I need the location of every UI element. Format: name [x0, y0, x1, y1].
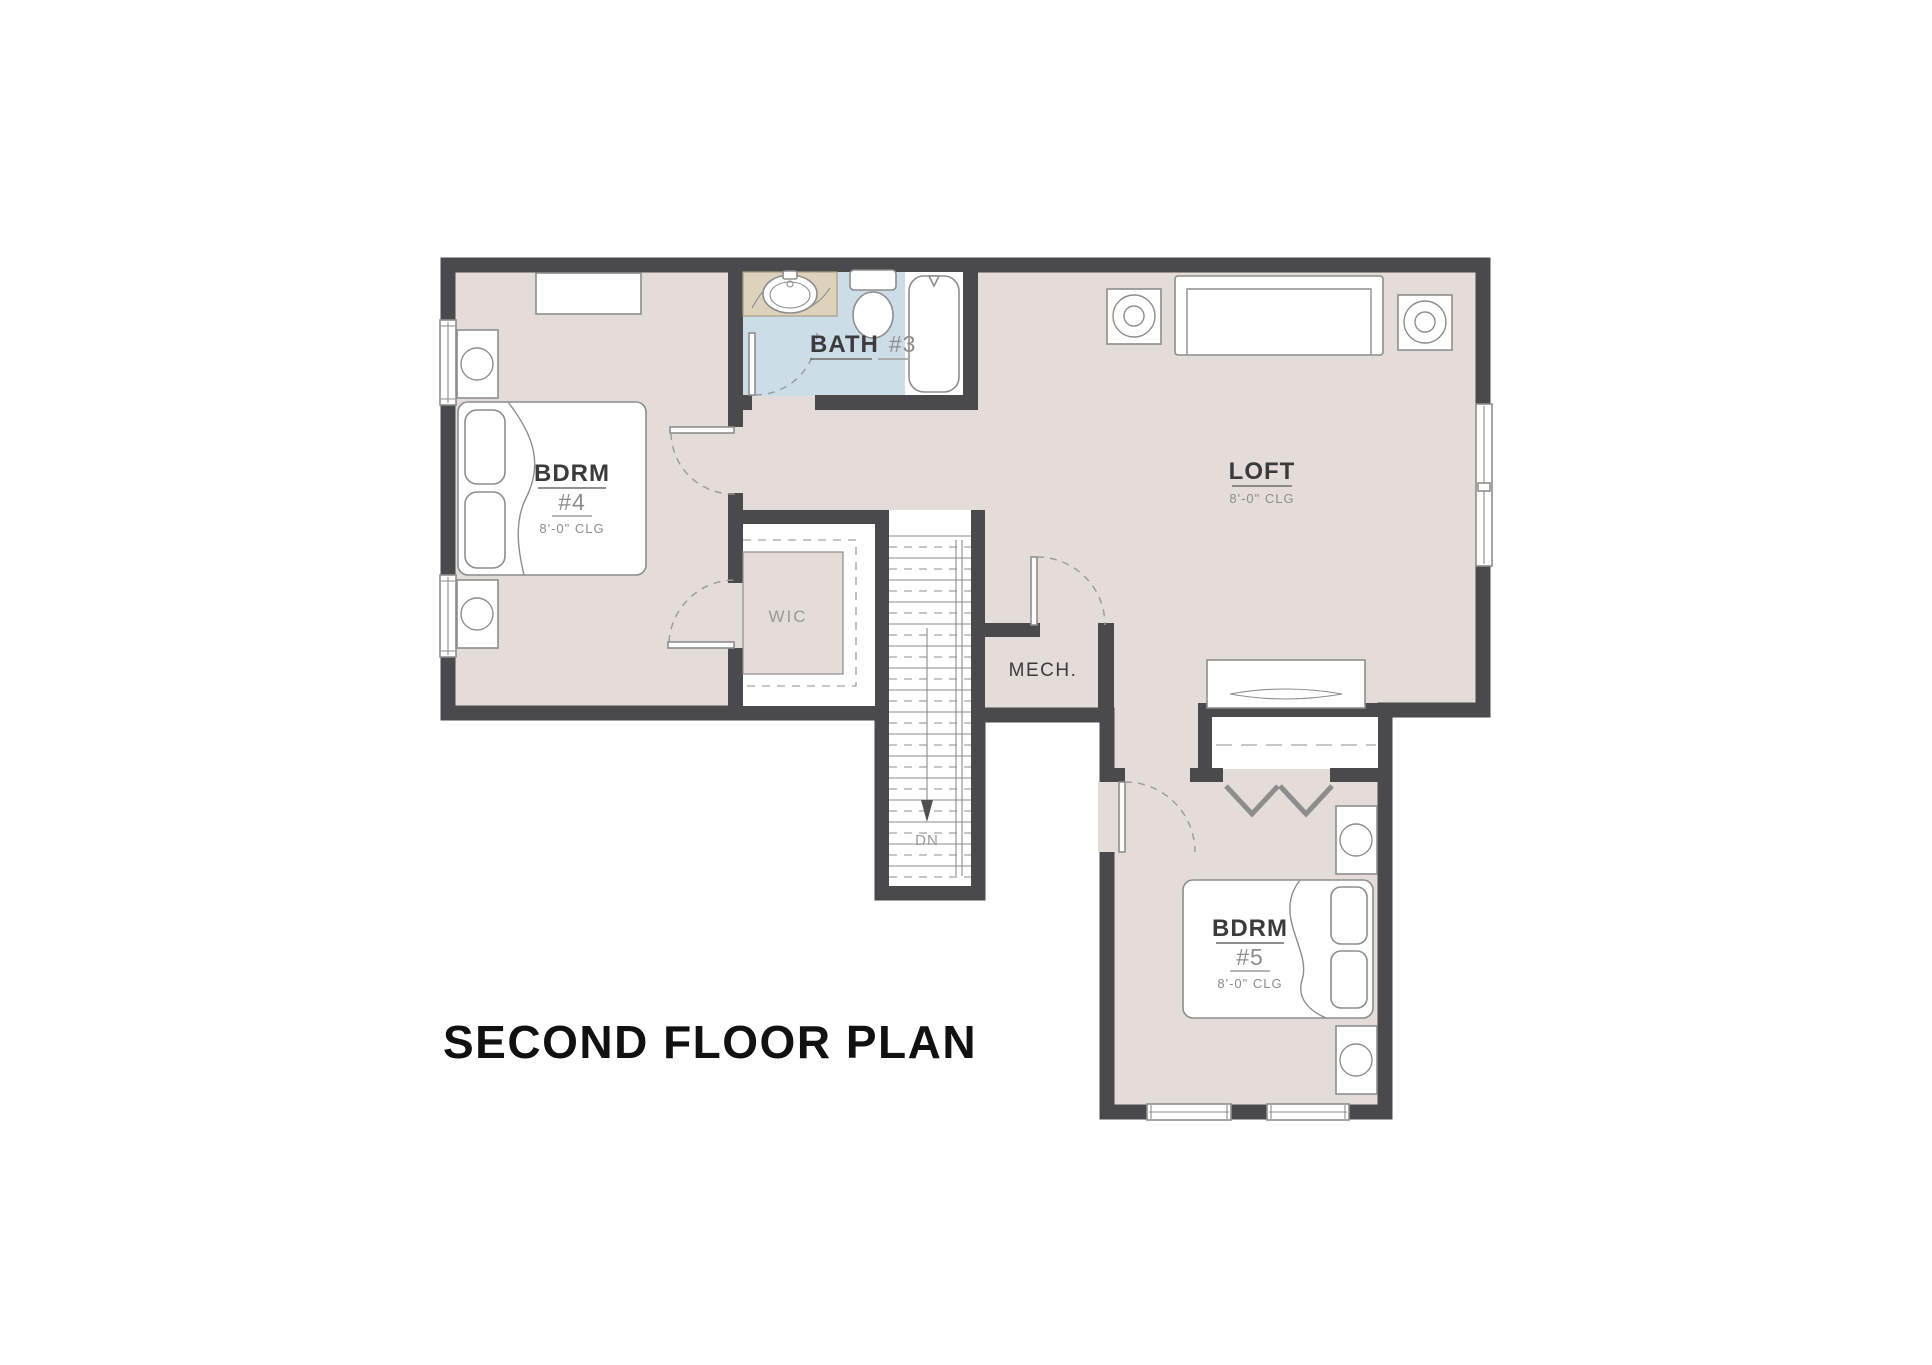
bdrm4-window-upper: [440, 320, 456, 405]
loft-ceiling: 8'-0" CLG: [1229, 491, 1294, 506]
floor-plan-canvas: DN: [0, 0, 1932, 1365]
bath3-label: BATH#3: [810, 331, 916, 359]
stairwell-floor: [889, 510, 971, 886]
loft-label: LOFT 8'-0" CLG: [1229, 458, 1296, 506]
loft-side-table-right: [1398, 295, 1452, 350]
toilet: [850, 270, 896, 338]
bdrm4-ceiling: 8'-0" CLG: [539, 521, 604, 536]
bath3-number: #3: [889, 331, 917, 357]
stair-dn-label: DN: [915, 832, 939, 849]
bdrm4-nightstand-lower: [457, 580, 498, 648]
bdrm5-door-opening: [1098, 782, 1117, 852]
bdrm4-dresser: [536, 273, 641, 314]
bdrm4-name: BDRM: [534, 460, 610, 487]
plan-title: SECOND FLOOR PLAN: [443, 1016, 977, 1068]
closet-floor: [1212, 717, 1378, 769]
loft-side-table-left: [1107, 289, 1161, 344]
loft-media-console: [1207, 660, 1365, 708]
bathtub: [909, 276, 959, 392]
bdrm5-window-left: [1147, 1104, 1231, 1120]
loft-right-window: [1476, 404, 1492, 566]
svg-text:BATH#3: BATH#3: [810, 331, 916, 358]
bath3-name: BATH: [810, 331, 879, 358]
wic-label: WIC: [768, 607, 807, 626]
floor-plan-page: DN: [0, 0, 1932, 1365]
bdrm4-window-lower: [440, 575, 456, 657]
bdrm4-number: #4: [558, 489, 586, 515]
loft-name: LOFT: [1229, 458, 1296, 485]
bdrm5-ceiling: 8'-0" CLG: [1217, 976, 1282, 991]
bdrm5-nightstand-upper: [1336, 806, 1377, 874]
bdrm5-name: BDRM: [1212, 915, 1288, 942]
bdrm5-window-right: [1267, 1104, 1349, 1120]
loft-sofa: [1175, 276, 1383, 355]
mech-label: MECH.: [1009, 660, 1078, 681]
bdrm5-nightstand-lower: [1336, 1026, 1377, 1094]
bdrm4-nightstand-upper: [457, 330, 498, 398]
bdrm5-bed: [1183, 880, 1373, 1018]
bdrm5-number: #5: [1236, 944, 1264, 970]
